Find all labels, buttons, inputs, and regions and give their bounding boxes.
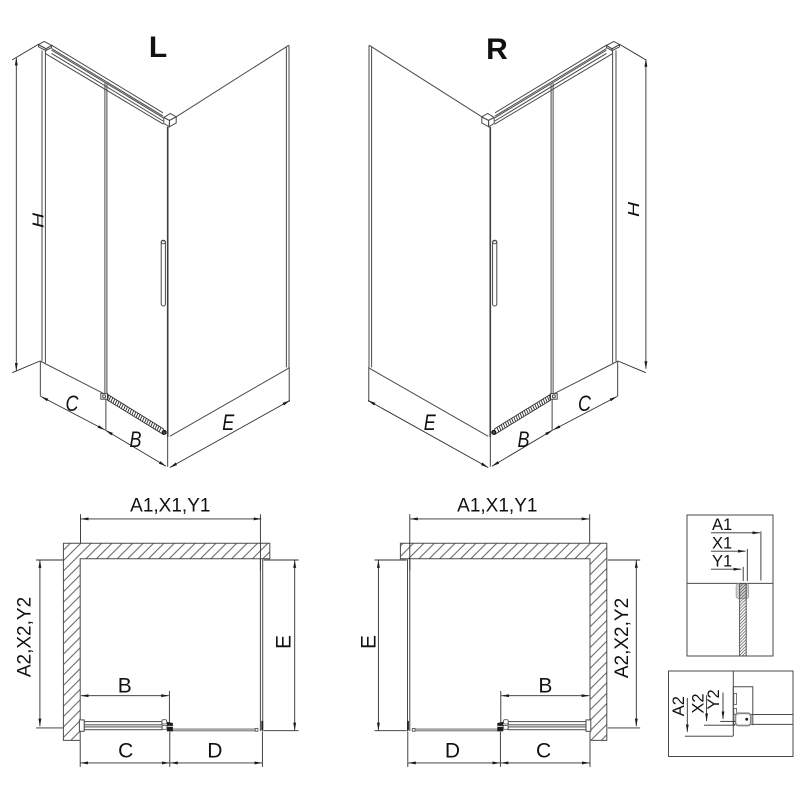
svg-text:E: E: [273, 635, 296, 649]
svg-text:X1: X1: [712, 535, 732, 553]
svg-text:B: B: [517, 428, 529, 452]
svg-text:A2: A2: [670, 696, 688, 716]
svg-text:A1: A1: [712, 516, 732, 534]
svg-text:E: E: [222, 411, 234, 435]
svg-text:B: B: [538, 675, 552, 698]
svg-text:Y1: Y1: [712, 553, 732, 571]
svg-text:A1,X1,Y1: A1,X1,Y1: [457, 495, 537, 516]
svg-text:D: D: [445, 740, 460, 763]
svg-text:C: C: [578, 392, 591, 416]
svg-text:B: B: [118, 675, 132, 698]
svg-text:C: C: [66, 392, 79, 416]
svg-text:H: H: [29, 212, 47, 228]
svg-text:C: C: [536, 740, 551, 763]
svg-text:A2,X2,Y2: A2,X2,Y2: [612, 598, 633, 678]
svg-text:R: R: [486, 33, 508, 66]
svg-text:Y2: Y2: [705, 689, 723, 709]
svg-text:H: H: [625, 201, 643, 217]
svg-text:A2,X2,Y2: A2,X2,Y2: [15, 597, 36, 677]
svg-text:L: L: [149, 31, 167, 64]
svg-text:C: C: [118, 740, 133, 763]
svg-text:B: B: [129, 428, 141, 452]
svg-text:D: D: [207, 740, 222, 763]
svg-text:E: E: [424, 411, 436, 435]
svg-text:E: E: [357, 635, 380, 649]
svg-text:A1,X1,Y1: A1,X1,Y1: [130, 495, 210, 516]
